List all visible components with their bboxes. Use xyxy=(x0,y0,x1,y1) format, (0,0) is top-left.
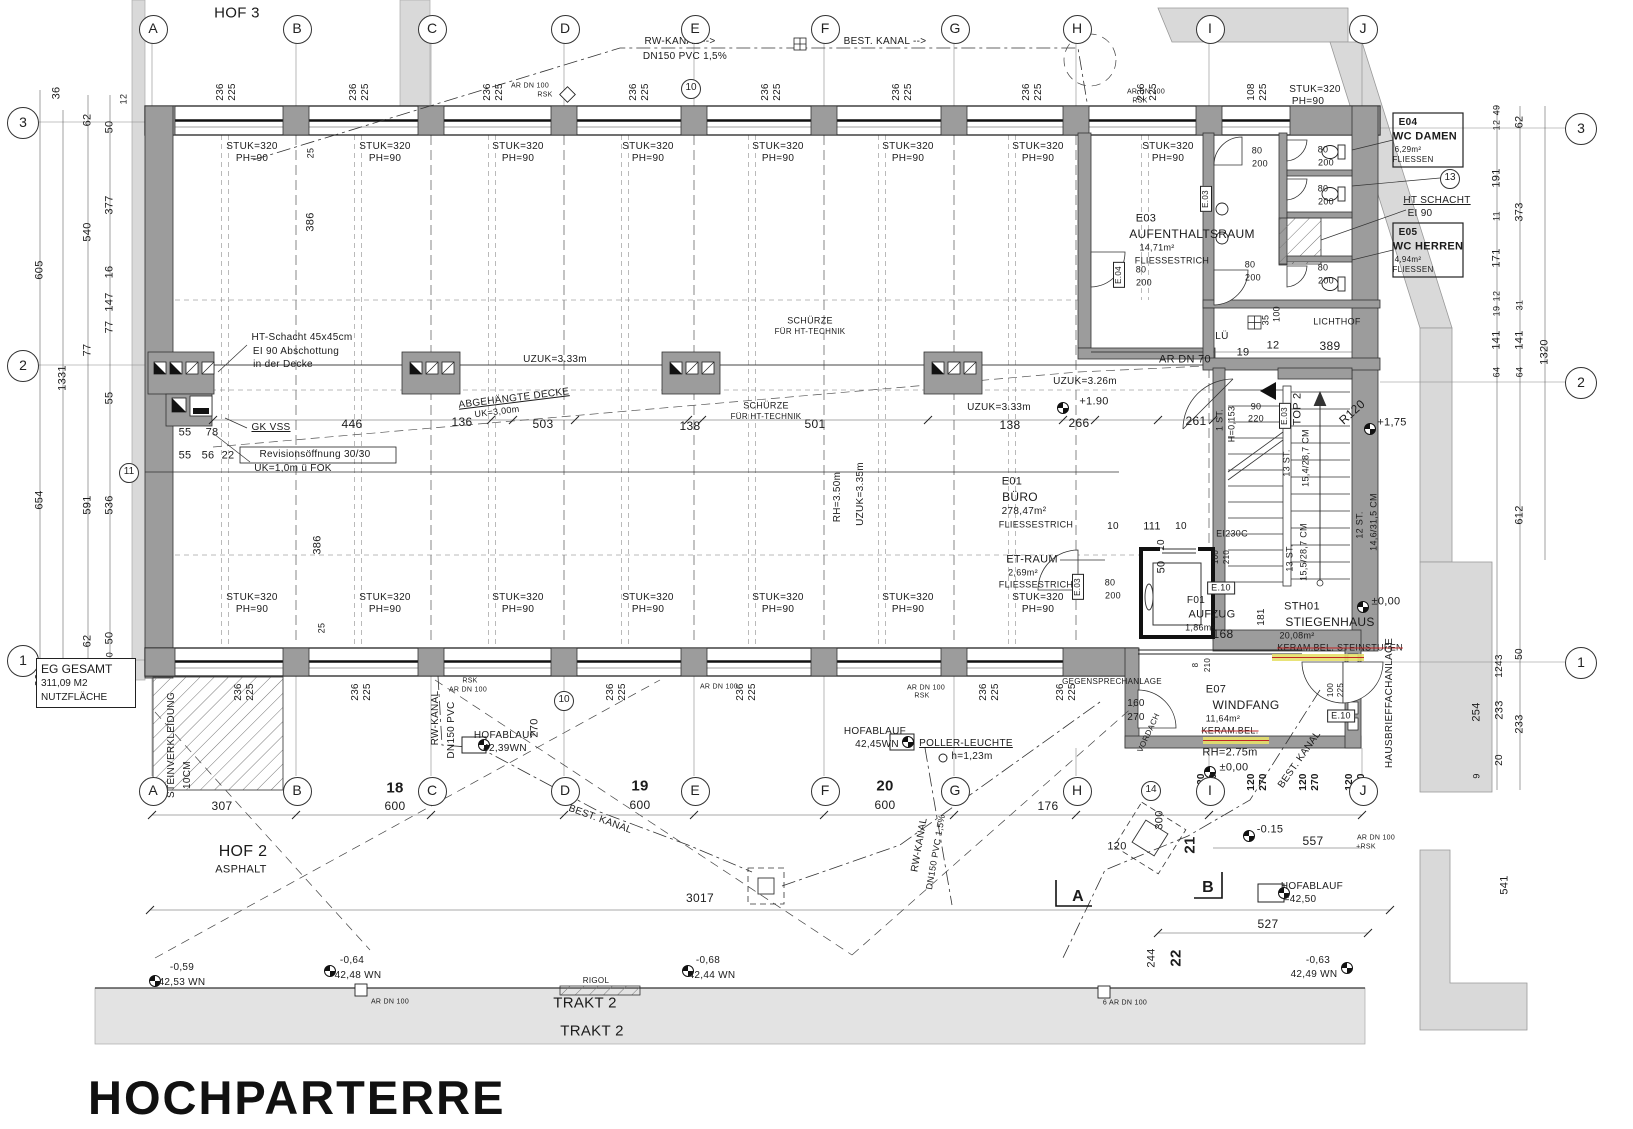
plan-text: 225 xyxy=(641,83,651,101)
plan-text: 307 xyxy=(212,800,233,812)
plan-text: 147 xyxy=(105,292,116,311)
room-sth01: STH01 xyxy=(1284,602,1320,613)
plan-text: 64 xyxy=(1493,367,1502,378)
plan-text: 191 xyxy=(1492,168,1503,187)
plan-text: STUK=320 xyxy=(492,142,544,152)
plan-text: RH=3.50m xyxy=(833,472,843,522)
room-e03: E03 xyxy=(1136,214,1156,225)
plan-text: 236 xyxy=(349,83,359,101)
plan-text: 244 xyxy=(1147,948,1158,967)
plan-text: +1,75 xyxy=(1377,418,1406,429)
plan-text: 386 xyxy=(313,535,324,554)
plan-text: 261 xyxy=(1186,415,1207,427)
grid-bubble-G: G xyxy=(941,15,970,44)
plan-text: RW-KANAL xyxy=(431,691,441,746)
plan-text: 25 xyxy=(307,148,316,159)
plan-text: 1320 xyxy=(1540,339,1551,365)
plan-text: KERAM.BEL. xyxy=(1201,727,1258,736)
plan-text: 90 xyxy=(1251,403,1262,412)
plan-text: SCHÜRZE xyxy=(743,402,789,411)
plan-text: STUK=320 xyxy=(1289,85,1341,95)
plan-text: FLIESSEN xyxy=(1392,266,1433,274)
plan-text: WINDFANG xyxy=(1212,699,1279,711)
plan-text: 200 xyxy=(1105,592,1121,601)
plan-text: PH=90 xyxy=(632,154,664,164)
plan-text: BÜRO xyxy=(1002,491,1038,503)
plan-text: PH=90 xyxy=(369,154,401,164)
section-b: B xyxy=(1202,880,1214,896)
plan-text: 15,4/28,7 CM xyxy=(1302,429,1311,487)
plan-text: RSK xyxy=(537,92,552,99)
plan-text: 236 xyxy=(1022,83,1032,101)
plan-text: 3017 xyxy=(686,892,714,904)
plan-text: 254 xyxy=(1472,702,1483,721)
plan-text: 503 xyxy=(533,418,554,430)
grid-bubble-H: H xyxy=(1063,15,1092,44)
plan-text: 50 xyxy=(1515,648,1525,660)
plan-text: GEGENSPRECHANLAGE xyxy=(1062,678,1162,686)
grid-bubble-14: 14 xyxy=(1141,781,1161,801)
plan-text: h=1,23m xyxy=(951,752,992,762)
room-e05: E05 xyxy=(1399,228,1418,238)
plan-text: 373 xyxy=(1515,202,1526,221)
plan-text: ±0,00 xyxy=(1372,597,1401,608)
plan-text: 10 xyxy=(1157,539,1167,551)
plan-text: HOFABLAUF xyxy=(1281,882,1343,892)
plan-text: STUK=320 xyxy=(1142,142,1194,152)
plan-text: 36 xyxy=(52,87,63,100)
plan-text: 42,44 WN xyxy=(689,971,736,981)
plan-text: E.10 xyxy=(1207,582,1235,595)
plan-text: 8 xyxy=(1192,663,1200,668)
plan-text: 141 xyxy=(1492,330,1503,349)
plan-text: EI230C xyxy=(1216,530,1248,539)
plan-text: 22 xyxy=(1169,949,1184,966)
plan-text: 605 xyxy=(35,260,46,279)
plan-text: PH=90 xyxy=(236,605,268,615)
lichthof-label: LICHTHOF xyxy=(1313,318,1360,327)
plan-text: DN150 PVC 1,5% xyxy=(643,52,727,62)
plan-text: 1 ST. xyxy=(1216,409,1225,431)
plan-text: 11,64m² xyxy=(1206,715,1240,724)
eg-area-type: NUTZFLÄCHE xyxy=(41,691,131,705)
plan-text: STUK=320 xyxy=(492,593,544,603)
plan-text: ±0,00 xyxy=(1220,763,1249,774)
plan-text: E.10 xyxy=(1327,710,1355,723)
plan-text: 1243 xyxy=(1495,654,1505,677)
plan-text: 270 xyxy=(1127,713,1145,723)
plan-text: -0,64 xyxy=(340,956,364,966)
plan-text: PH=90 xyxy=(369,605,401,615)
plan-text: 210 xyxy=(1223,550,1231,564)
plan-text: 9 xyxy=(1473,773,1482,778)
plan-text: in der Decke xyxy=(253,360,313,370)
grid-bubble-B: B xyxy=(283,777,312,806)
plan-text: STUK=320 xyxy=(622,593,674,603)
plan-text: 80 xyxy=(1252,147,1263,156)
grid-bubble-13: 13 xyxy=(1440,169,1460,189)
grid-bubble-F: F xyxy=(811,777,840,806)
plan-text: E.04 xyxy=(1113,262,1125,288)
plan-text: 236 xyxy=(761,83,771,101)
plan-text: 120 xyxy=(1247,773,1257,791)
plan-text: 20 xyxy=(1495,754,1505,766)
plan-text: STIEGENHAUS xyxy=(1285,616,1374,628)
plan-text: PH=90 xyxy=(892,605,924,615)
plan-text: -0.15 xyxy=(1257,825,1284,836)
plan-text: 501 xyxy=(805,418,826,430)
plan-text: FLIESSEN xyxy=(1392,156,1433,164)
plan-text: 225 xyxy=(618,683,628,701)
plan-text: 225 xyxy=(904,83,914,101)
plan-text: 225 xyxy=(991,683,1001,701)
plan-text: 21 xyxy=(1183,836,1198,853)
plan-text: PH=90 xyxy=(502,605,534,615)
plan-text: 56 xyxy=(202,451,215,462)
plan-text: 12 xyxy=(1493,120,1502,131)
plan-text: 1,86m² xyxy=(1185,624,1215,633)
grid-bubble-F: F xyxy=(811,15,840,44)
grid-bubble-C: C xyxy=(418,777,447,806)
plan-text: STUK=320 xyxy=(1012,593,1064,603)
plan-text: HOFABLAUF xyxy=(844,727,906,737)
plan-text: 527 xyxy=(1258,918,1279,930)
plan-text: 42,53 WN xyxy=(159,978,206,988)
plan-text: 55 xyxy=(179,428,192,439)
plan-text: RSK xyxy=(914,693,929,700)
plan-text: HAUSBRIEFFACHANLAGE xyxy=(1385,638,1395,768)
plan-text: 50 xyxy=(105,121,116,134)
grid-bubble-G: G xyxy=(941,777,970,806)
plan-text: 12 xyxy=(1267,341,1280,352)
plan-text: 64 xyxy=(1516,367,1525,378)
plan-text: LÜ xyxy=(1215,332,1228,342)
plan-text: 13 ST. xyxy=(1283,449,1292,476)
plan-text: 200 xyxy=(1318,198,1334,207)
plan-text: 80 xyxy=(1245,261,1256,270)
plan-text: 612 xyxy=(1515,505,1526,524)
plan-text: 160 xyxy=(1127,699,1145,709)
plan-text: 654 xyxy=(35,490,46,509)
plan-text: 111 xyxy=(1143,522,1161,533)
plan-text: 236 xyxy=(629,83,639,101)
plan-text: STUK=320 xyxy=(882,142,934,152)
plan-text: 225 xyxy=(773,83,783,101)
plan-text: 176 xyxy=(1038,800,1059,812)
plan-text: 4,94m² xyxy=(1395,256,1422,264)
grid-bubble-B: B xyxy=(283,15,312,44)
plan-text: +RSK xyxy=(1356,844,1376,851)
plan-text: 200 xyxy=(1318,277,1334,286)
plan-text: 600 xyxy=(385,800,406,812)
plan-text: 80 xyxy=(1318,185,1329,194)
plan-text: SCHÜRZE xyxy=(787,317,833,326)
plan-text: 19 xyxy=(631,779,648,794)
plan-text: 22 xyxy=(222,451,235,462)
plan-text: AR DN 100 xyxy=(700,684,738,691)
plan-text: STEINVERKLEIDUNG xyxy=(167,692,177,798)
plan-text: PH=90 xyxy=(892,154,924,164)
grid-bubble-A: A xyxy=(139,777,168,806)
plan-text: WC DAMEN xyxy=(1393,132,1457,143)
grid-bubble-A: A xyxy=(139,15,168,44)
plan-text: PH=90 xyxy=(1022,605,1054,615)
drawing-title: HOCHPARTERRE xyxy=(88,1070,505,1125)
plan-text: 389 xyxy=(1320,340,1341,352)
plan-text: 377 xyxy=(105,195,116,214)
plan-text: 120 xyxy=(1299,773,1309,791)
plan-text: 541 xyxy=(1500,875,1511,894)
plan-text: 600 xyxy=(630,799,651,811)
plan-text: 12 xyxy=(1493,291,1502,302)
plan-text: 20,08m² xyxy=(1279,632,1314,641)
plan-text: 168 xyxy=(1213,628,1234,640)
plan-text: -0,59 xyxy=(170,963,194,973)
plan-text: TOP 2 xyxy=(1293,393,1304,426)
eg-area-value: 311,09 M2 xyxy=(41,677,131,691)
plan-text: 236 xyxy=(351,683,361,701)
plan-text: 200 xyxy=(1245,274,1261,283)
plan-text: 62 xyxy=(1515,116,1526,129)
plan-text: 225 xyxy=(246,683,256,701)
plan-text: RIGOL xyxy=(583,977,609,985)
plan-text: 225 xyxy=(363,683,373,701)
grid-bubble-2: 2 xyxy=(7,350,39,382)
plan-text: E.03 xyxy=(1200,186,1212,212)
plan-text: 210 xyxy=(1204,658,1212,672)
plan-text: +1.90 xyxy=(1079,397,1108,408)
plan-text: 138 xyxy=(1000,419,1021,431)
plan-text: 200 xyxy=(1252,160,1268,169)
plan-text: 236 xyxy=(234,683,244,701)
plan-text: 270 xyxy=(1259,773,1269,791)
plan-text: 446 xyxy=(342,418,363,430)
plan-text: 20 xyxy=(876,779,893,794)
eg-gesamt-label: EG GESAMT xyxy=(41,661,131,677)
plan-text: HT-Schacht 45x45cm xyxy=(252,333,353,343)
plan-text: 386 xyxy=(306,212,317,231)
grid-bubble-1: 1 xyxy=(7,645,39,677)
hof3-label: HOF 3 xyxy=(214,6,260,21)
plan-text: 78 xyxy=(206,428,219,439)
plan-text: 80 xyxy=(1105,579,1116,588)
plan-text: ASPHALT xyxy=(215,865,266,876)
plan-text: PH=90 xyxy=(1022,154,1054,164)
floor-plan-page: HOF 3TRAKT 2TRAKT 2HOF 2ASPHALTRW-KANAL … xyxy=(0,0,1633,1129)
plan-text: 225 xyxy=(361,83,371,101)
plan-text: 62 xyxy=(83,635,94,648)
plan-text: 77 xyxy=(83,344,94,357)
plan-text: 225 xyxy=(748,683,758,701)
grid-bubble-I: I xyxy=(1196,15,1225,44)
plan-text: 270 xyxy=(1311,773,1321,791)
plan-text: 55 xyxy=(105,392,116,405)
plan-text: AR DN 100 xyxy=(907,685,945,692)
plan-text: 225 xyxy=(1149,83,1159,101)
plan-text: STUK=320 xyxy=(622,142,674,152)
plan-text: 236 xyxy=(606,683,616,701)
plan-text: PH=90 xyxy=(762,154,794,164)
plan-text: 42,39WN xyxy=(483,744,527,754)
plan-text: AR DN 100 xyxy=(1357,835,1395,842)
plan-text: HT SCHACHT xyxy=(1403,196,1470,206)
plan-text: =42,50 xyxy=(1284,895,1317,905)
plan-text: 171 xyxy=(1492,248,1503,267)
plan-text: 591 xyxy=(83,495,94,514)
plan-text: 12 ST. xyxy=(1356,511,1365,538)
plan-text: R120 xyxy=(1337,398,1367,427)
plan-text: RW-KANAL xyxy=(910,817,929,873)
plan-text: 233 xyxy=(1495,700,1506,719)
plan-text: 278,47m² xyxy=(1002,507,1047,517)
plan-text: STUK=320 xyxy=(882,593,934,603)
room-e01: E01 xyxy=(1002,477,1022,488)
area-summary-box: EG GESAMT 311,09 M2 NUTZFLÄCHE xyxy=(36,658,136,708)
room-e04: E04 xyxy=(1399,118,1418,128)
plan-text: 108 xyxy=(1247,83,1257,101)
plan-text: 236 xyxy=(1137,83,1147,101)
plan-text: 225 xyxy=(228,83,238,101)
plan-text: STUK=320 xyxy=(226,593,278,603)
grid-bubble-D: D xyxy=(551,777,580,806)
plan-text: BEST. KANAL xyxy=(567,804,633,836)
plan-text: WC HERREN xyxy=(1393,242,1464,253)
plan-text: 100 xyxy=(1212,550,1220,564)
grid-bubble-J: J xyxy=(1349,15,1378,44)
plan-text: 100 xyxy=(1273,306,1282,322)
plan-text: 19 xyxy=(1493,306,1502,317)
plan-text: 10CM xyxy=(183,761,193,789)
plan-text: 80 xyxy=(1318,264,1329,273)
plan-text: AR DN 100 xyxy=(449,687,487,694)
plan-text: UZUK=3.33m xyxy=(523,355,587,365)
plan-text: 2,69m² xyxy=(1008,569,1038,578)
plan-text: STUK=320 xyxy=(752,142,804,152)
plan-text: 16 xyxy=(105,266,116,279)
plan-text: BEST. KANAL --> xyxy=(844,37,927,47)
plan-text: AR DN 70 xyxy=(1159,355,1211,366)
plan-text: E.03 xyxy=(1072,574,1084,600)
plan-text: 14,71m² xyxy=(1139,244,1174,253)
plan-text: 536 xyxy=(105,495,116,514)
trakt2-upper: TRAKT 2 xyxy=(553,996,617,1011)
plan-text: 225 xyxy=(1034,83,1044,101)
plan-text: 6,29m² xyxy=(1395,146,1422,154)
grid-bubble-C: C xyxy=(418,15,447,44)
plan-text: 77 xyxy=(105,321,116,334)
plan-text: 62 xyxy=(83,114,94,127)
plan-text: POLLER-LEUCHTE xyxy=(919,739,1013,749)
plan-text: AR DN 100 xyxy=(511,83,549,90)
plan-text: FÜR HT-TECHNIK xyxy=(731,413,802,421)
plan-text: 10 xyxy=(1175,522,1187,532)
grid-bubble-1: 1 xyxy=(1565,647,1597,679)
plan-text: 50 xyxy=(105,632,116,645)
plan-text: FÜR HT-TECHNIK xyxy=(775,328,846,336)
plan-text: 11 xyxy=(1493,211,1502,221)
plan-text: 19 xyxy=(1237,348,1250,359)
trakt2-lower: TRAKT 2 xyxy=(560,1024,624,1039)
plan-text: 10 xyxy=(1107,522,1119,532)
plan-text: RH=2.75m xyxy=(1202,748,1257,759)
plan-text: 557 xyxy=(1303,835,1324,847)
plan-text: 42,45WN xyxy=(855,740,899,750)
plan-text: UZUK=3.33m xyxy=(967,403,1031,413)
plan-text: 600 xyxy=(875,799,896,811)
plan-text: 55 xyxy=(179,451,192,462)
grid-bubble-3: 3 xyxy=(7,107,39,139)
plan-text: STUK=320 xyxy=(226,142,278,152)
plan-text: RSK xyxy=(462,678,477,685)
plan-text: 236 xyxy=(483,83,493,101)
plan-text: 220 xyxy=(1248,415,1264,424)
plan-text: PH=90 xyxy=(1292,97,1324,107)
plan-text: 200 xyxy=(1318,159,1334,168)
plan-text: FLIESSESTRICH xyxy=(999,521,1073,530)
plan-text: DN150 PVC xyxy=(447,701,457,758)
plan-text: GK VSS xyxy=(251,423,290,433)
plan-text: PH=90 xyxy=(632,605,664,615)
plan-text: 80 xyxy=(1318,146,1329,155)
plan-text: PH=90 xyxy=(502,154,534,164)
grid-bubble-11: 11 xyxy=(119,463,139,483)
plan-text: 18 xyxy=(386,781,403,796)
grid-bubble-I: I xyxy=(1196,777,1225,806)
grid-bubble-E: E xyxy=(681,15,710,44)
plan-text: 6 AR DN 100 xyxy=(1103,1000,1147,1007)
grid-bubble-10: 10 xyxy=(681,79,701,99)
plan-text: 31 xyxy=(1516,300,1525,311)
plan-text: 225 xyxy=(1337,683,1345,697)
grid-bubble-D: D xyxy=(551,15,580,44)
plan-text: 236 xyxy=(979,683,989,701)
plan-text: 50 xyxy=(1157,561,1168,574)
room-e07: E07 xyxy=(1206,685,1226,696)
plan-text: UZUK=3.26m xyxy=(1053,377,1117,387)
plan-text: 49 xyxy=(1493,105,1502,116)
plan-text: -0,63 xyxy=(1306,956,1330,966)
grid-bubble-2: 2 xyxy=(1565,367,1597,399)
plan-text: HOFABLAUF xyxy=(474,731,536,741)
plan-text: 100 xyxy=(1327,683,1335,697)
plan-text: 42,49 WN xyxy=(1291,970,1338,980)
plan-text: 300 xyxy=(1155,810,1166,829)
grid-bubble-E: E xyxy=(681,777,710,806)
plan-text: Revisionsöffnung 30/30 xyxy=(260,450,371,460)
plan-text: 136 xyxy=(452,416,473,428)
plan-text: 12 xyxy=(120,94,129,105)
room-et: ET-RAUM xyxy=(1006,555,1058,566)
plan-text: 540 xyxy=(83,222,94,241)
plan-text: AUFENTHALTSRAUM xyxy=(1129,228,1255,240)
plan-text: 200 xyxy=(1136,279,1152,288)
plan-text: STUK=320 xyxy=(1012,142,1064,152)
plan-text: 13 ST. xyxy=(1286,544,1295,571)
plan-text: 1331 xyxy=(58,365,69,391)
plan-text: 141 xyxy=(1515,330,1526,349)
plan-labels-layer: HOF 3TRAKT 2TRAKT 2HOF 2ASPHALTRW-KANAL … xyxy=(0,0,1633,1129)
plan-text: UK=1,0m ü FOK xyxy=(254,464,332,474)
room-f01: F01 xyxy=(1187,596,1205,606)
plan-text: 138 xyxy=(680,420,701,432)
plan-text: AR DN 100 xyxy=(371,999,409,1006)
plan-text: FLIESSESTRICH xyxy=(999,581,1073,590)
hof2-label: HOF 2 xyxy=(219,844,268,860)
plan-text: EI 90 Abschottung xyxy=(253,347,339,357)
grid-bubble-10: 10 xyxy=(554,691,574,711)
plan-text: 15,5/28,7 CM xyxy=(1300,523,1309,581)
plan-text: 236 xyxy=(892,83,902,101)
